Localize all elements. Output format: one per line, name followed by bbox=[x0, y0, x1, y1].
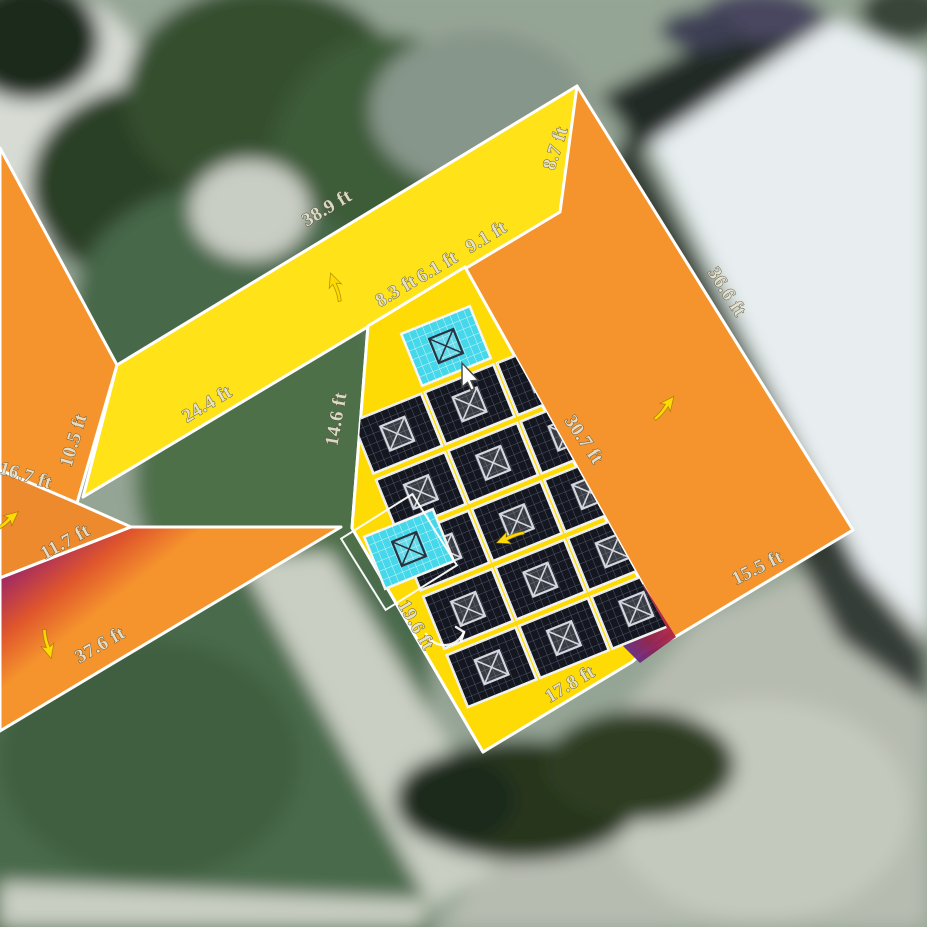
solar-design-canvas[interactable]: 38.9 ft8.7 ft8.3 ft6.1 ft9.1 ft24.4 ft10… bbox=[0, 0, 927, 927]
